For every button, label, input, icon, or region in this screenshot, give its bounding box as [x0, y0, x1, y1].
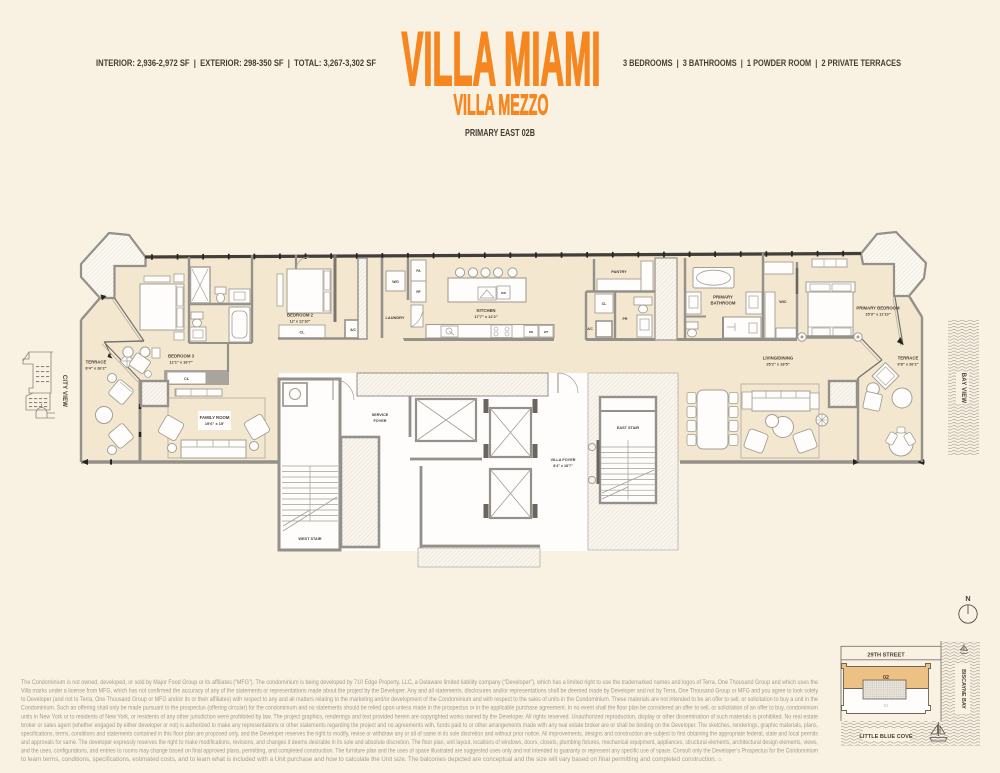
svg-text:PR: PR — [623, 317, 628, 321]
svg-text:17’7” x 12’2”: 17’7” x 12’2” — [474, 314, 497, 319]
svg-text:to learn terms, conditions, sp: to learn terms, conditions, specificatio… — [21, 756, 722, 763]
svg-text:LIVING/DINING: LIVING/DINING — [763, 356, 794, 361]
svg-text:CL: CL — [602, 302, 608, 306]
svg-text:WT: WT — [544, 330, 549, 334]
svg-text:PRIMARY: PRIMARY — [713, 295, 733, 300]
svg-text:BATHROOM: BATHROOM — [711, 301, 736, 306]
svg-text:broker or sales agent (whether: broker or sales agent (whether engaged b… — [21, 722, 818, 729]
svg-text:WIC: WIC — [779, 300, 787, 304]
svg-text:FOYER: FOYER — [373, 419, 386, 423]
svg-text:A/C: A/C — [350, 328, 356, 332]
svg-text:EAST STAIR: EAST STAIR — [617, 426, 640, 430]
svg-text:PA: PA — [416, 269, 421, 273]
svg-text:CITY VIEW: CITY VIEW — [61, 375, 67, 407]
svg-text:to Developer (and not to Terra: to Developer (and not to Terra, One Thou… — [21, 696, 819, 703]
svg-text:WEST STAIR: WEST STAIR — [298, 537, 321, 541]
svg-text:15’3” x 11’10”: 15’3” x 11’10” — [865, 312, 890, 317]
svg-text:BISCAYNE BAY: BISCAYNE BAY — [960, 669, 966, 709]
svg-text:DW: DW — [501, 291, 506, 295]
svg-text:9’8” x 26’2”: 9’8” x 26’2” — [897, 362, 918, 367]
svg-text:01: 01 — [884, 703, 889, 708]
svg-text:TERRACE: TERRACE — [86, 360, 107, 365]
svg-text:25’2” x 18’5”: 25’2” x 18’5” — [766, 362, 789, 367]
svg-text:SERVICE: SERVICE — [372, 413, 389, 417]
svg-text:12’1” x 16’7”: 12’1” x 16’7” — [169, 360, 192, 365]
svg-text:W/D: W/D — [392, 280, 399, 284]
svg-text:PRIMARY BEDROOM: PRIMARY BEDROOM — [856, 306, 900, 311]
svg-text:INTERIOR: 2,936-2,972 SF | E: INTERIOR: 2,936-2,972 SF | EXTERIOR: 298… — [96, 58, 376, 69]
svg-text:Villa marks under a license fr: Villa marks under a license from MFG, wh… — [21, 688, 819, 695]
svg-text:The Condominium is not owned,: The Condominium is not owned, developed,… — [21, 679, 819, 686]
svg-text:units in New York or to reside: units in New York or to residents of New… — [21, 713, 819, 720]
svg-text:A/C: A/C — [587, 327, 593, 331]
svg-text:RN: RN — [529, 330, 533, 334]
svg-text:PRIMARY EAST 02B: PRIMARY EAST 02B — [465, 128, 535, 139]
svg-text:BAY VIEW: BAY VIEW — [960, 373, 966, 404]
svg-text:CL: CL — [299, 331, 305, 335]
svg-text:RF: RF — [416, 290, 420, 294]
svg-text:KITCHEN: KITCHEN — [476, 308, 495, 313]
svg-text:8’4” x 26’2”: 8’4” x 26’2” — [85, 366, 106, 371]
svg-text:BEDROOM 3: BEDROOM 3 — [168, 354, 195, 359]
svg-text:VILLA MEZZO: VILLA MEZZO — [454, 90, 549, 122]
svg-text:29TH STREET: 29TH STREET — [867, 653, 905, 659]
svg-text:LITTLE BLUE COVE: LITTLE BLUE COVE — [859, 734, 912, 740]
svg-text:and the uses, configurations,: and the uses, configurations, and entrie… — [21, 748, 818, 755]
svg-text:FAMILY ROOM: FAMILY ROOM — [200, 415, 230, 420]
svg-text:3 BEDROOMS | 3 BATHROOMS |: 3 BEDROOMS | 3 BATHROOMS | 1 POWDER ROOM… — [623, 58, 901, 69]
svg-text:TERRACE: TERRACE — [898, 356, 919, 361]
svg-text:VILLA FOYER: VILLA FOYER — [551, 458, 576, 462]
svg-text:12’ x 11’10”: 12’ x 11’10” — [290, 319, 311, 324]
svg-text:Condominium. Such an offering: Condominium. Such an offering shall only… — [21, 705, 818, 712]
svg-text:specifications, terms, conditi: specifications, terms, conditions and st… — [21, 731, 818, 738]
svg-text:BEDROOM 2: BEDROOM 2 — [287, 313, 314, 318]
svg-text:N: N — [965, 594, 970, 603]
svg-text:PANTRY: PANTRY — [611, 269, 627, 274]
svg-text:19’6” x 15’: 19’6” x 15’ — [205, 421, 224, 426]
svg-text:LAUNDRY: LAUNDRY — [386, 315, 405, 320]
svg-text:and approvals for same. The de: and approvals for same. The developer ex… — [21, 739, 818, 746]
svg-text:8’4” x 18’7”: 8’4” x 18’7” — [553, 464, 573, 468]
svg-text:CL: CL — [184, 377, 190, 381]
